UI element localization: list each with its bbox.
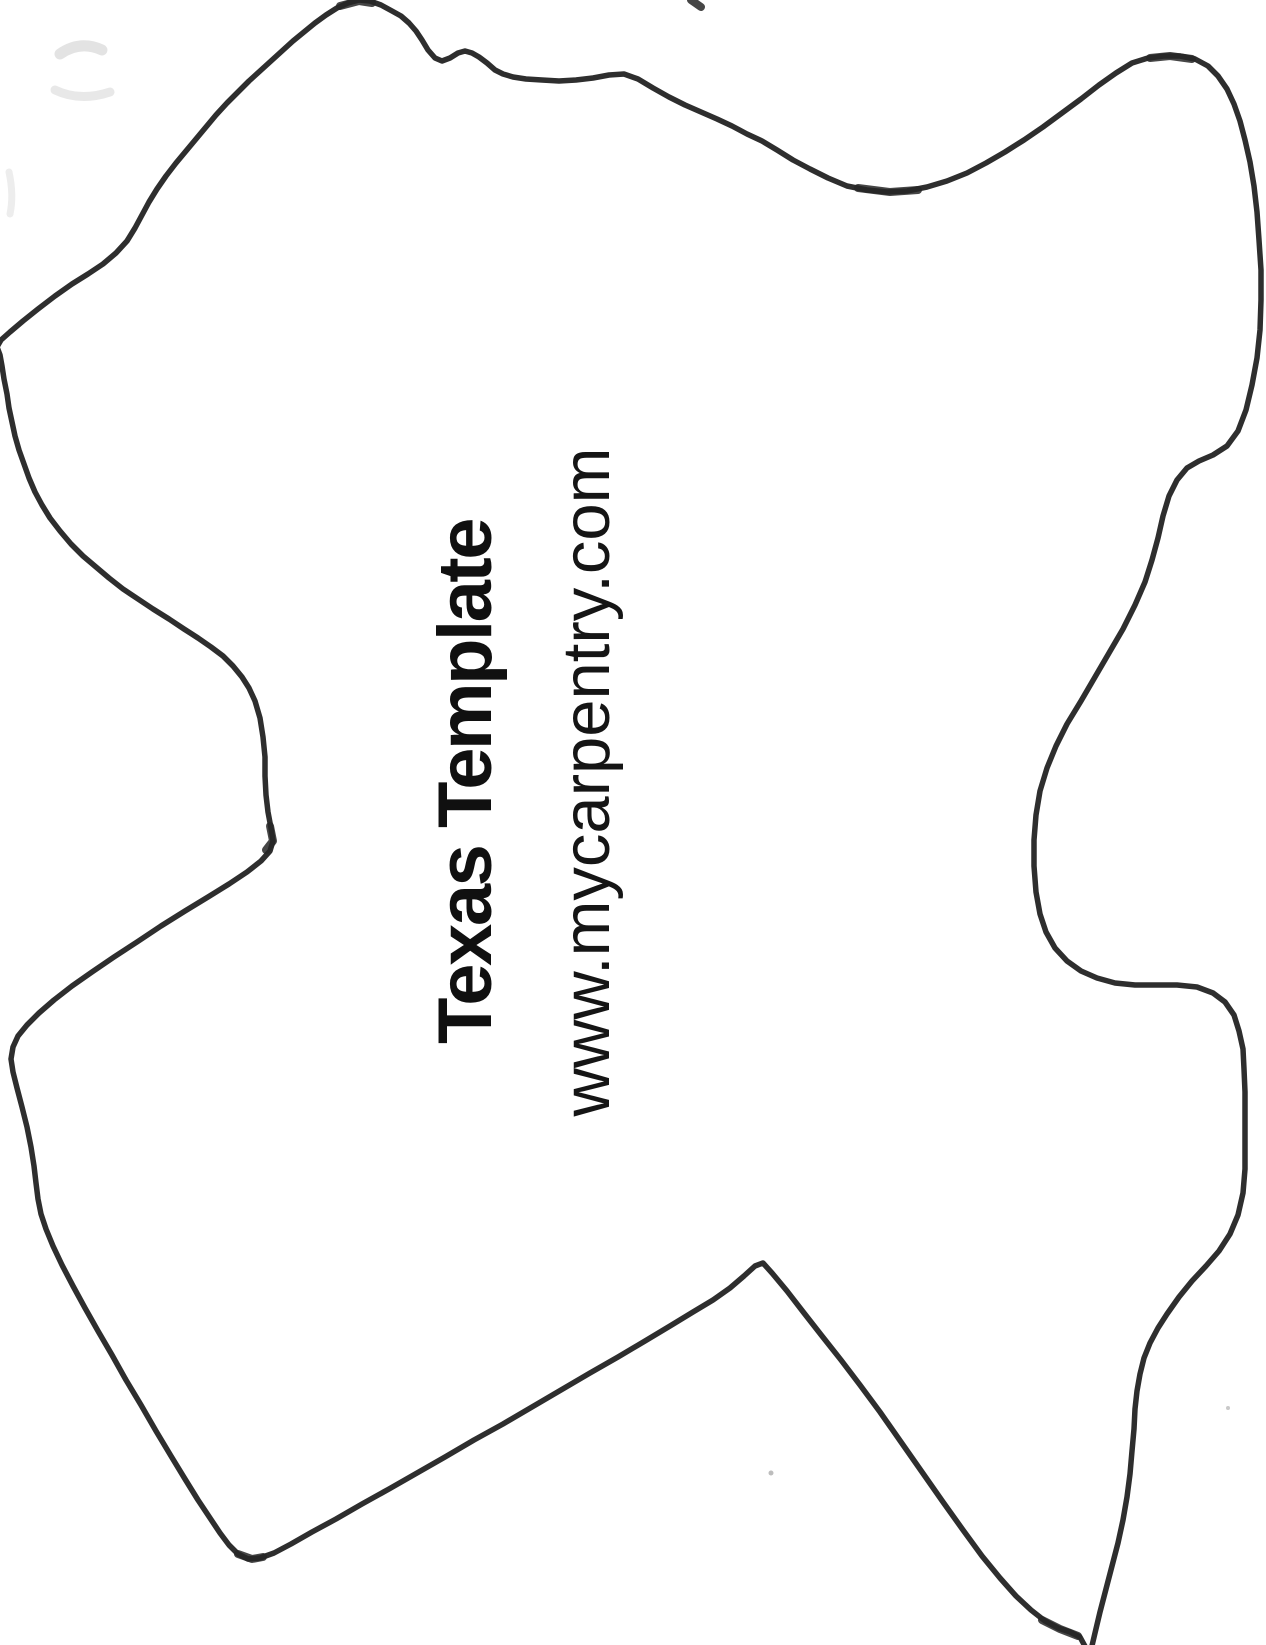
ink-accent-arm-corner (238, 1554, 263, 1559)
scan-smudge-1 (60, 46, 102, 54)
scanned-template-page: Texas Template www.mycarpentry.com (0, 0, 1266, 1645)
rotated-label-block: Texas Template www.mycarpentry.com (419, 422, 661, 1142)
ink-accent-elbow (266, 826, 273, 850)
ink-accent-bottom-notch (1042, 1620, 1078, 1636)
ink-accent-right-peak (1150, 56, 1192, 59)
ink-accent-valley (858, 188, 918, 192)
scan-speck-2 (1226, 1406, 1230, 1410)
scan-smudge-3 (9, 172, 12, 214)
website-url: www.mycarpentry.com (513, 448, 661, 1117)
template-title: Texas Template (419, 520, 513, 1044)
scan-speck-1 (769, 1471, 774, 1476)
ink-accent-top-peak (340, 1, 372, 6)
scan-tick-top-edge (691, 0, 701, 7)
scan-smudge-2 (55, 90, 110, 97)
